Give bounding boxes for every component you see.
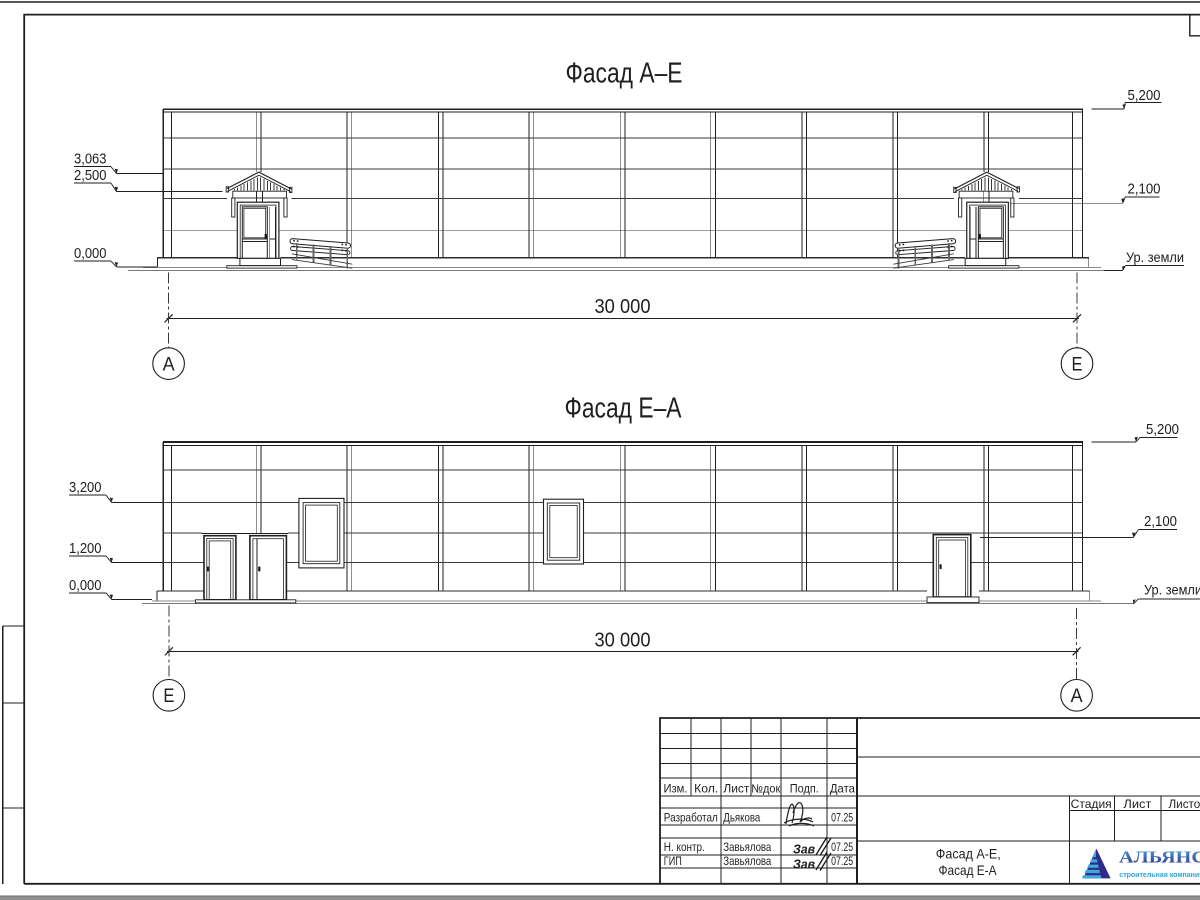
svg-text:0,000: 0,000: [69, 578, 102, 594]
svg-text:Лист: Лист: [1123, 797, 1152, 811]
svg-text:Ур. земли: Ур. земли: [1126, 250, 1184, 265]
svg-text:Завьялова: Завьялова: [723, 855, 771, 868]
svg-text:Е: Е: [163, 686, 174, 707]
svg-text:АЛЬЯНС: АЛЬЯНС: [1119, 847, 1200, 866]
svg-text:Изм.: Изм.: [664, 782, 688, 796]
svg-text:Ур. земли: Ур. земли: [1144, 583, 1200, 598]
svg-text:2,100: 2,100: [1144, 514, 1177, 530]
svg-text:30 000: 30 000: [595, 628, 651, 651]
svg-text:5,200: 5,200: [1146, 422, 1179, 438]
svg-text:07.25: 07.25: [831, 841, 853, 854]
svg-text:А: А: [163, 354, 175, 375]
svg-text:№док: №док: [751, 782, 781, 796]
svg-text:Разработал: Разработал: [664, 812, 718, 825]
svg-text:Фасад Е–А: Фасад Е–А: [565, 393, 683, 425]
svg-text:3,200: 3,200: [69, 480, 102, 496]
svg-text:Фасад Е-А: Фасад Е-А: [939, 863, 998, 878]
svg-text:Стадия: Стадия: [1071, 797, 1112, 811]
svg-text:1,200: 1,200: [69, 541, 102, 557]
svg-text:Зав: Зав: [793, 857, 815, 872]
svg-text:5,200: 5,200: [1128, 88, 1161, 104]
svg-text:2,100: 2,100: [1128, 182, 1161, 198]
svg-text:3,063: 3,063: [74, 151, 107, 167]
svg-text:Зав: Зав: [793, 842, 815, 857]
svg-text:30 000: 30 000: [595, 295, 651, 318]
svg-text:Фасад А–Е: Фасад А–Е: [566, 58, 683, 90]
svg-text:Кол.: Кол.: [694, 782, 718, 796]
svg-text:Листов: Листов: [1169, 797, 1200, 811]
svg-text:Е: Е: [1072, 354, 1083, 375]
svg-text:Завьялова: Завьялова: [723, 841, 771, 854]
svg-text:строительная компания: строительная компания: [1119, 870, 1200, 879]
svg-text:Дьякова: Дьякова: [723, 812, 760, 825]
svg-text:Н. контр.: Н. контр.: [664, 841, 705, 854]
svg-text:Дата: Дата: [830, 782, 855, 796]
svg-text:Лист: Лист: [723, 782, 750, 796]
svg-text:ГИП: ГИП: [664, 855, 682, 868]
svg-text:А: А: [1071, 686, 1083, 707]
svg-text:0,000: 0,000: [74, 246, 107, 262]
svg-text:Фасад А-Е,: Фасад А-Е,: [936, 847, 1001, 862]
svg-text:2,500: 2,500: [74, 168, 107, 184]
svg-text:07.25: 07.25: [831, 855, 853, 868]
svg-text:Подп.: Подп.: [790, 782, 819, 796]
svg-text:07.25: 07.25: [831, 812, 853, 825]
